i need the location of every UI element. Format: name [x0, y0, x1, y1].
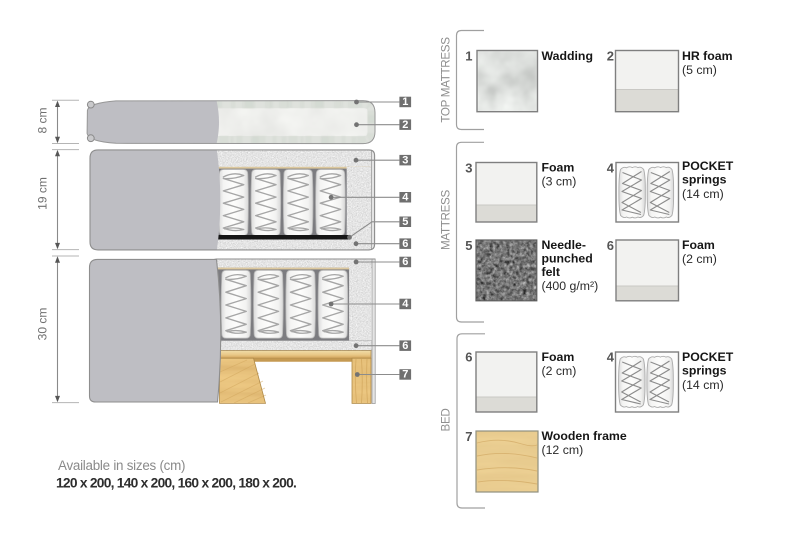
- svg-text:6: 6: [402, 340, 408, 352]
- svg-text:Foam: Foam: [542, 350, 575, 364]
- svg-text:3: 3: [402, 154, 408, 166]
- svg-text:HR foam: HR foam: [682, 49, 733, 63]
- svg-text:Available in sizes (cm): Available in sizes (cm): [58, 458, 185, 473]
- svg-text:Foam: Foam: [542, 161, 575, 175]
- svg-text:6: 6: [402, 238, 408, 250]
- svg-text:5: 5: [465, 238, 472, 253]
- svg-text:6: 6: [607, 238, 614, 253]
- svg-text:2: 2: [607, 49, 614, 64]
- svg-text:springs: springs: [682, 364, 727, 378]
- svg-text:4: 4: [607, 161, 615, 176]
- svg-text:Wooden frame: Wooden frame: [542, 429, 627, 443]
- svg-text:(14 cm): (14 cm): [682, 187, 724, 201]
- svg-text:6: 6: [465, 350, 472, 365]
- svg-text:Foam: Foam: [682, 238, 715, 252]
- svg-text:BED: BED: [440, 409, 453, 432]
- svg-text:8 cm: 8 cm: [36, 107, 50, 133]
- svg-text:19 cm: 19 cm: [36, 177, 50, 210]
- svg-text:4: 4: [402, 192, 409, 204]
- svg-text:(3 cm): (3 cm): [542, 175, 577, 189]
- svg-text:1: 1: [402, 96, 408, 108]
- svg-text:(12 cm): (12 cm): [542, 443, 584, 457]
- svg-text:5: 5: [402, 216, 408, 228]
- svg-text:Needle-: Needle-: [542, 238, 586, 252]
- svg-text:2: 2: [402, 119, 408, 131]
- svg-text:7: 7: [402, 369, 408, 381]
- svg-text:1: 1: [465, 49, 472, 64]
- svg-text:(14 cm): (14 cm): [682, 378, 724, 392]
- svg-text:(2 cm): (2 cm): [542, 364, 577, 378]
- svg-text:4: 4: [607, 350, 615, 365]
- svg-text:MATTRESS: MATTRESS: [440, 190, 453, 250]
- svg-text:4: 4: [402, 298, 409, 310]
- svg-text:springs: springs: [682, 173, 727, 187]
- svg-text:30 cm: 30 cm: [36, 308, 50, 341]
- svg-text:(400 g/m²): (400 g/m²): [542, 279, 599, 293]
- svg-text:7: 7: [465, 429, 472, 444]
- svg-text:120 x 200, 140 x 200, 160 x 20: 120 x 200, 140 x 200, 160 x 200, 180 x 2…: [56, 476, 296, 491]
- svg-text:POCKET: POCKET: [682, 350, 734, 364]
- svg-text:6: 6: [402, 256, 408, 268]
- svg-text:punched: punched: [542, 252, 593, 266]
- svg-text:3: 3: [465, 161, 472, 176]
- svg-text:POCKET: POCKET: [682, 159, 734, 173]
- svg-text:TOP MATTRESS: TOP MATTRESS: [440, 37, 453, 123]
- svg-text:(5 cm): (5 cm): [682, 63, 717, 77]
- svg-text:Wadding: Wadding: [542, 49, 593, 63]
- svg-text:felt: felt: [542, 265, 560, 279]
- svg-text:(2 cm): (2 cm): [682, 252, 717, 266]
